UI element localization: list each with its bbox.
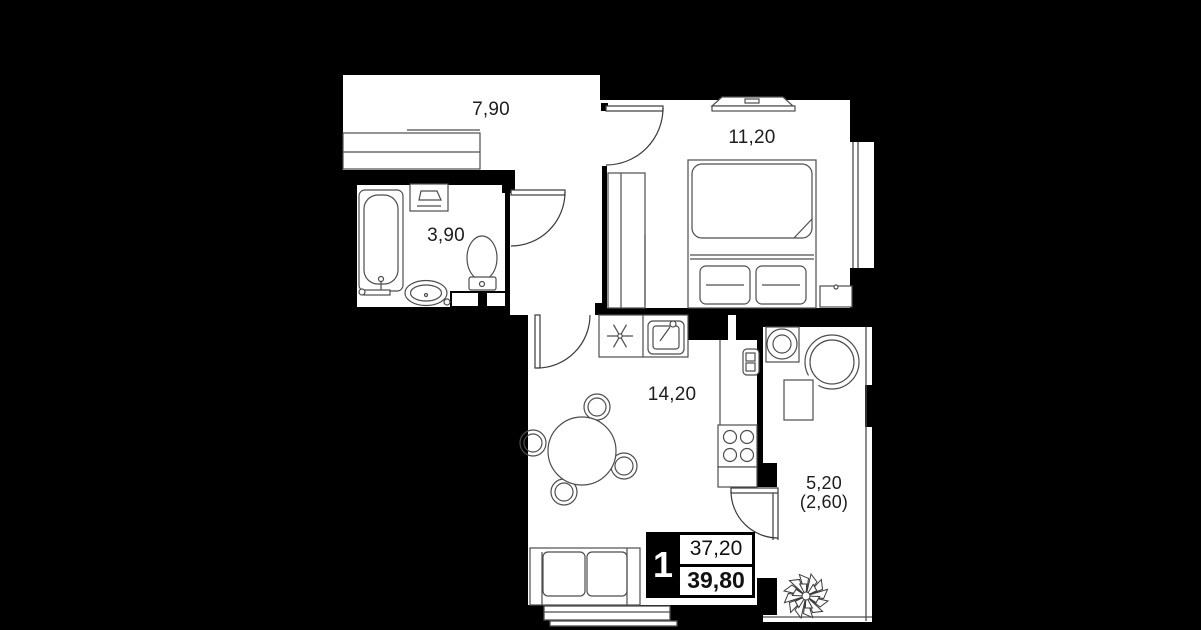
toilet-icon [467,236,497,290]
washing-machine-icon [766,327,799,362]
room-label-balcony: 5,20 (2,60) [800,474,848,512]
room-count: 1 [649,535,677,595]
sofa-icon [530,548,640,605]
shaft-column [736,315,762,340]
balcony-area-secondary: (2,60) [800,493,848,512]
tv-icon [712,97,795,111]
balcony-area-primary: 5,20 [800,474,848,493]
wall [757,463,777,487]
wall-slot [452,293,478,306]
room-label-bathroom: 3,90 [427,225,465,247]
wardrobe-icon [608,173,645,308]
area-living: 37,20 [680,535,752,564]
wardrobe-icon [343,130,480,169]
bathtub-icon [359,190,403,295]
area-values: 37,20 39,80 [680,535,752,595]
radiator-icon [743,349,759,375]
floor-plan-drawing [0,0,1201,630]
kitchen-window-sill [550,621,677,626]
wall-slot [487,293,505,306]
washing-machine-icon [410,184,448,211]
room-label-hallway: 7,90 [472,99,510,121]
room-label-bedroom: 11,20 [728,127,775,149]
balcony-table-icon [784,380,813,420]
shaft-column [683,315,728,340]
kitchen-sink-icon [648,321,684,354]
kitchen-window-band [544,606,670,620]
wall [602,166,607,308]
wall [595,303,607,315]
wall [760,578,777,615]
bed-icon [688,160,816,308]
nightstand-icon [820,285,852,307]
area-total: 39,80 [680,567,752,596]
apartment-summary-badge: 1 37,20 39,80 [646,532,755,598]
floor-plan-canvas: 7,90 11,20 3,90 14,20 5,20 (2,60) 1 37,2… [0,0,1201,630]
room-label-kitchen-living: 14,20 [648,384,697,406]
